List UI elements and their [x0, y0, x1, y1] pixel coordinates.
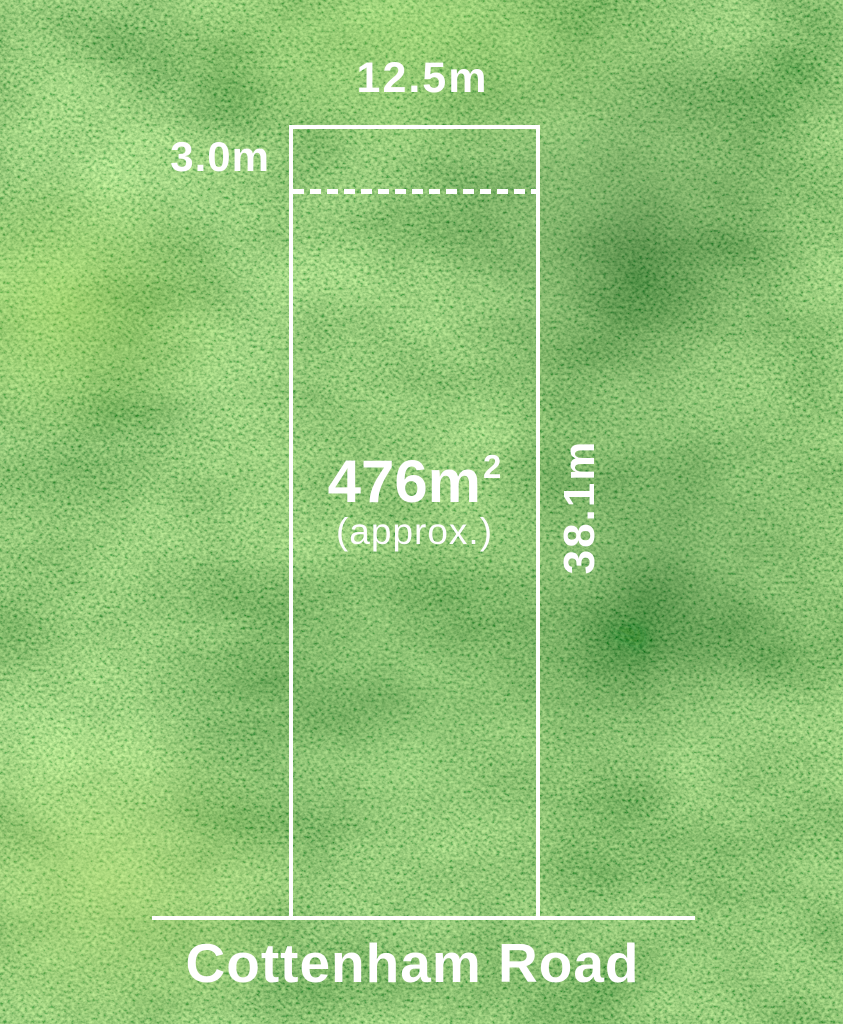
setback-dashed-line: [293, 189, 536, 194]
frontage-dimension-label: 12.5m: [297, 57, 548, 100]
land-site-plan: 12.5m 3.0m 476m2 (approx.) 38.1m Cottenh…: [0, 0, 843, 1024]
area-label: 476m2: [289, 450, 540, 512]
road-frontage-line: [152, 916, 695, 920]
area-value: 476m: [328, 448, 481, 515]
area-exponent: 2: [483, 448, 501, 485]
area-approx-label: (approx.): [289, 513, 540, 550]
road-name-label: Cottenham Road: [0, 936, 834, 991]
depth-dimension-label: 38.1m: [558, 440, 602, 575]
setback-dimension-label: 3.0m: [100, 136, 270, 178]
